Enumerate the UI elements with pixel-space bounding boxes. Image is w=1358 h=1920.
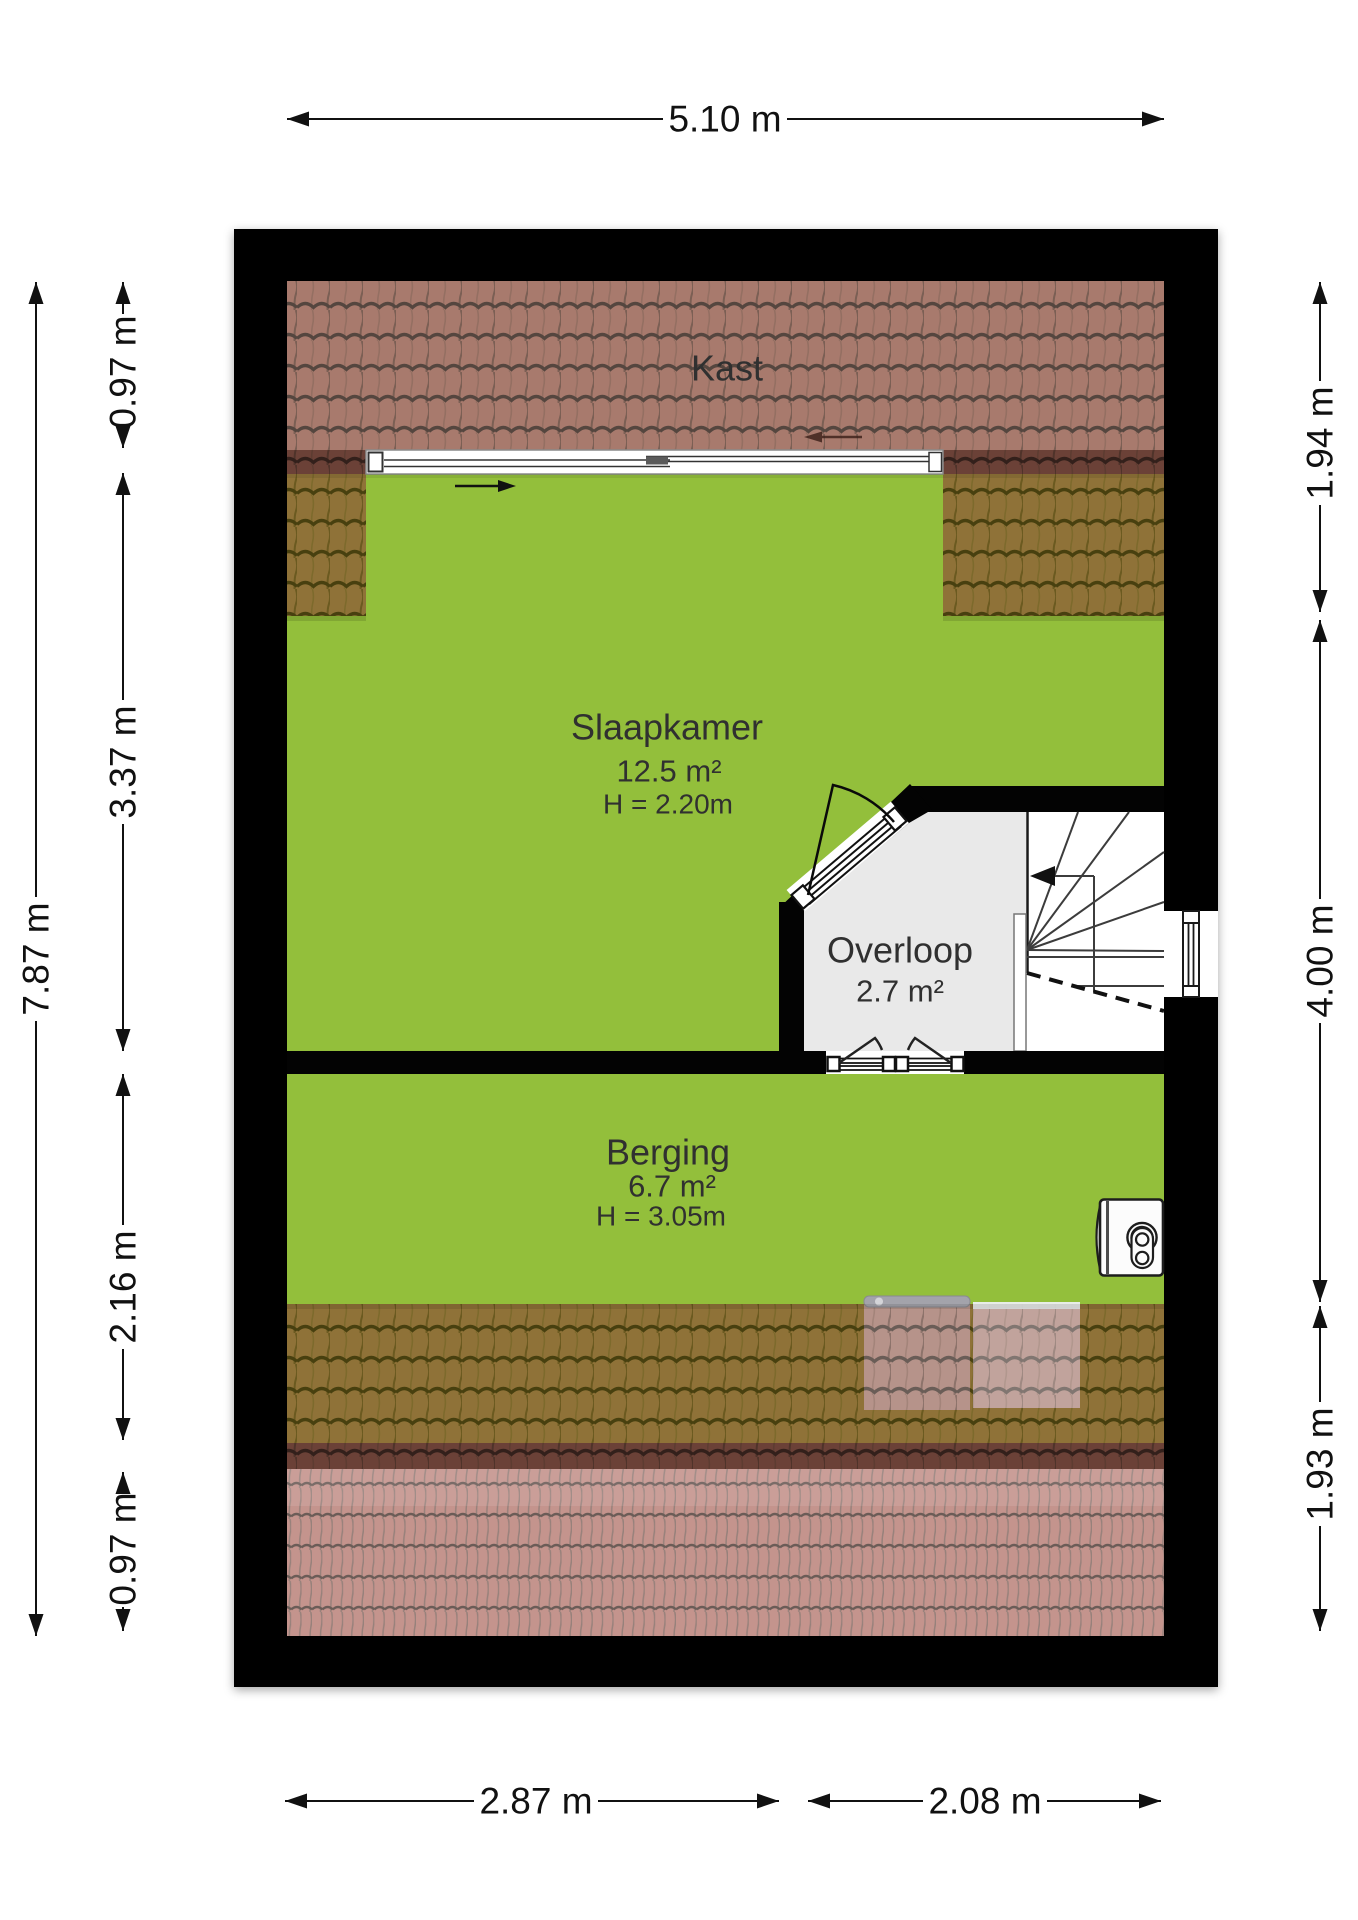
svg-text:3.37 m: 3.37 m: [103, 705, 144, 818]
svg-text:H = 2.20m: H = 2.20m: [603, 789, 733, 820]
svg-text:Overloop: Overloop: [827, 930, 973, 971]
svg-text:5.10 m: 5.10 m: [668, 99, 781, 140]
svg-text:0.97 m: 0.97 m: [103, 1492, 144, 1605]
svg-text:Slaapkamer: Slaapkamer: [571, 707, 763, 748]
svg-text:0.97 m: 0.97 m: [103, 315, 144, 428]
svg-text:Berging: Berging: [606, 1132, 730, 1173]
svg-text:7.87 m: 7.87 m: [16, 902, 57, 1015]
svg-text:1.93 m: 1.93 m: [1300, 1407, 1341, 1520]
svg-text:Kast: Kast: [691, 348, 763, 389]
svg-text:12.5 m²: 12.5 m²: [616, 754, 721, 789]
svg-text:1.94 m: 1.94 m: [1300, 386, 1341, 499]
svg-text:2.87 m: 2.87 m: [479, 1781, 592, 1822]
svg-text:2.08 m: 2.08 m: [928, 1781, 1041, 1822]
svg-text:4.00 m: 4.00 m: [1300, 904, 1341, 1017]
svg-text:6.7 m²: 6.7 m²: [628, 1169, 716, 1204]
svg-text:2.7 m²: 2.7 m²: [856, 974, 944, 1009]
svg-text:2.16 m: 2.16 m: [103, 1230, 144, 1343]
svg-text:H = 3.05m: H = 3.05m: [596, 1201, 726, 1232]
